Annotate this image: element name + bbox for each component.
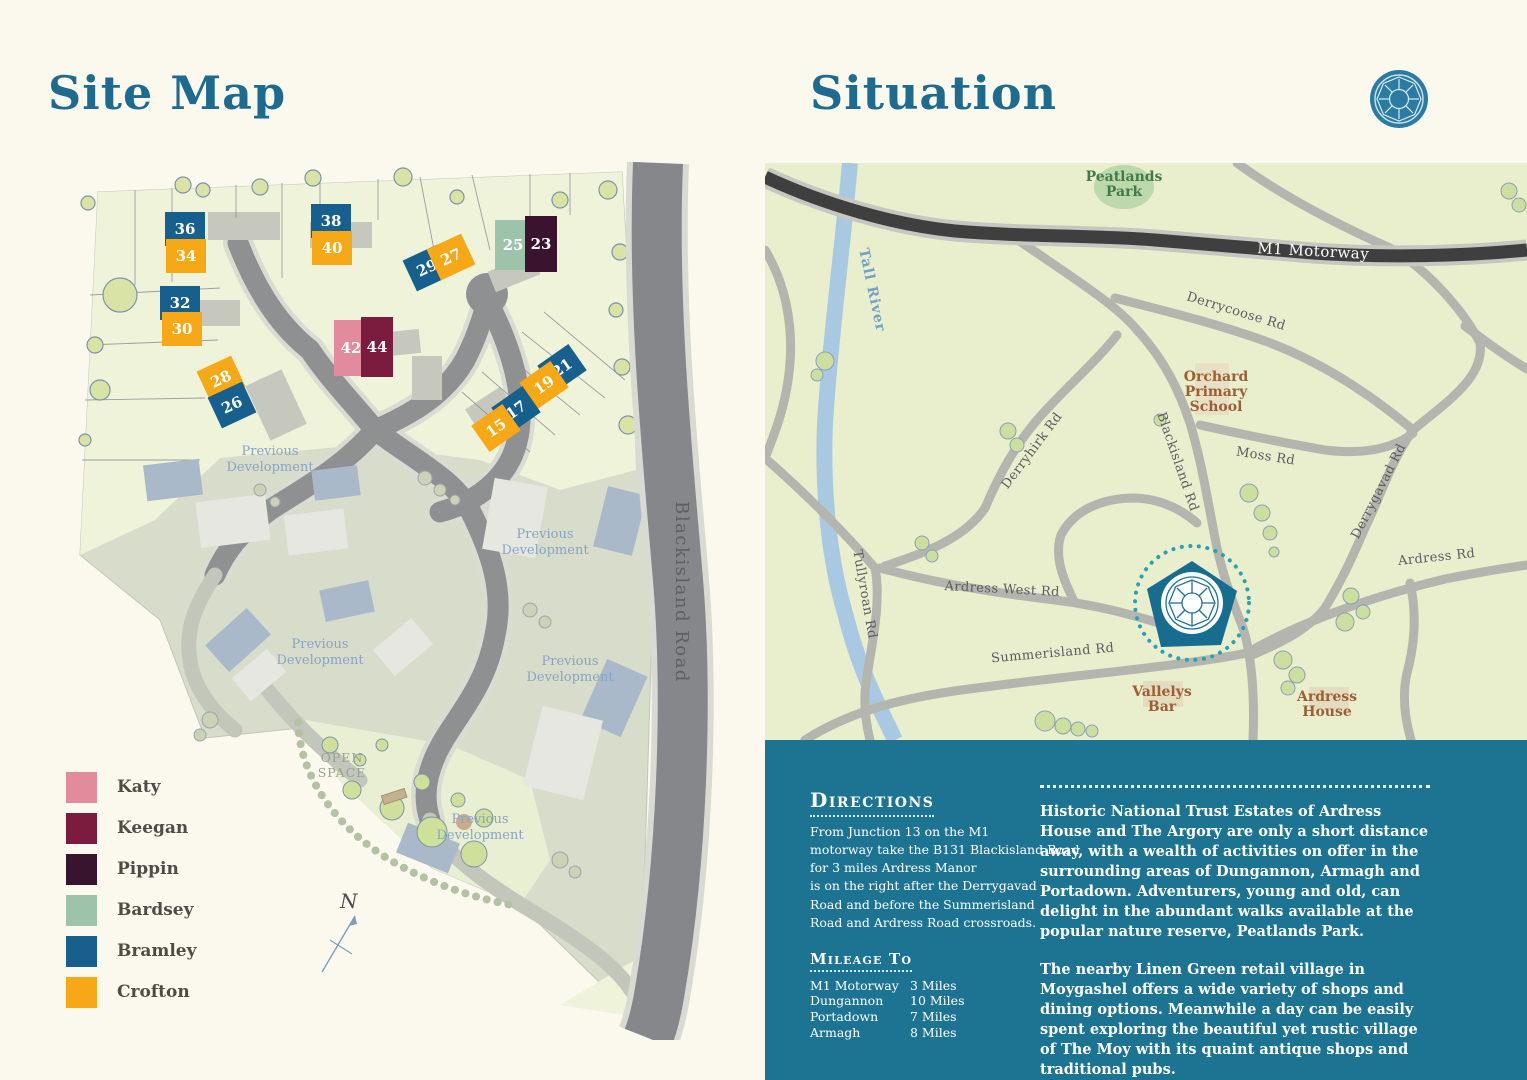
blackisland-road-label: Blackisland Road [671, 501, 692, 683]
mileage-heading: Mileage To [810, 950, 912, 972]
legend-label: Crofton [117, 982, 190, 1002]
map-label: OrchardPrimarySchool [1184, 369, 1249, 415]
mileage-distance: 3 Miles [910, 978, 957, 994]
plot-34: 34 [166, 239, 206, 273]
legend-label: Katy [117, 777, 161, 797]
plot-40: 40 [312, 231, 352, 265]
map-label: OPENSPACE [318, 750, 367, 780]
legend-swatch-crofton [66, 977, 97, 1008]
brand-logo-icon [1368, 68, 1430, 130]
compass-north-indicator: N [322, 889, 359, 972]
plot-number: 23 [531, 235, 552, 253]
situation-title: Situation [810, 66, 1057, 120]
plot-number: 38 [321, 212, 342, 230]
mileage-place: Armagh [810, 1025, 910, 1041]
legend-swatch-pippin [66, 854, 97, 885]
map-label: ArdressHouse [1296, 689, 1357, 720]
legend-item-bramley: Bramley [66, 931, 196, 971]
open-space-label: OPENSPACE [318, 750, 367, 780]
legend-item-pippin: Pippin [66, 849, 196, 889]
legend-swatch-bramley [66, 936, 97, 967]
mileage-distance: 10 Miles [910, 993, 965, 1009]
plot-number: 25 [503, 236, 524, 254]
legend-label: Bardsey [117, 900, 194, 920]
info-panel: Directions From Junction 13 on the M1 mo… [765, 740, 1527, 1080]
plot-23: 23 [525, 216, 557, 272]
plot-number: 42 [341, 339, 362, 357]
legend-item-katy: Katy [66, 767, 196, 807]
brochure-page: Site Map Situation [0, 0, 1527, 1080]
legend-label: Bramley [117, 941, 196, 961]
legend-swatch-bardsey [66, 895, 97, 926]
mileage-place: Dungannon [810, 993, 910, 1009]
dotted-divider [1040, 785, 1430, 788]
legend-item-bardsey: Bardsey [66, 890, 196, 930]
plot-number: 32 [170, 294, 191, 312]
plot-30: 30 [162, 312, 202, 346]
plot-type-legend: KatyKeeganPippinBardseyBramleyCrofton [66, 767, 196, 1013]
plot-44: 44 [361, 317, 393, 377]
plot-number: 34 [176, 247, 197, 265]
mileage-distance: 7 Miles [910, 1009, 957, 1025]
plot-number: 44 [367, 338, 388, 356]
directions-heading: Directions [810, 788, 934, 817]
mileage-place: Portadown [810, 1009, 910, 1025]
legend-swatch-keegan [66, 813, 97, 844]
legend-swatch-katy [66, 772, 97, 803]
legend-label: Keegan [117, 818, 188, 838]
legend-item-crofton: Crofton [66, 972, 196, 1012]
mileage-place: M1 Motorway [810, 978, 910, 994]
plot-number: 30 [172, 320, 193, 338]
legend-label: Pippin [117, 859, 179, 879]
situation-map: PeatlandsParkM1 MotorwayDerrycoose RdOrc… [765, 163, 1527, 740]
plot-number: 36 [175, 220, 196, 238]
mileage-distance: 8 Miles [910, 1025, 957, 1041]
legend-item-keegan: Keegan [66, 808, 196, 848]
plot-number: 40 [322, 239, 343, 257]
area-description-2: The nearby Linen Green retail village in… [1040, 960, 1430, 1080]
svg-text:N: N [339, 889, 359, 913]
area-description-1: Historic National Trust Estates of Ardre… [1040, 802, 1430, 942]
site-map-title: Site Map [48, 66, 286, 120]
